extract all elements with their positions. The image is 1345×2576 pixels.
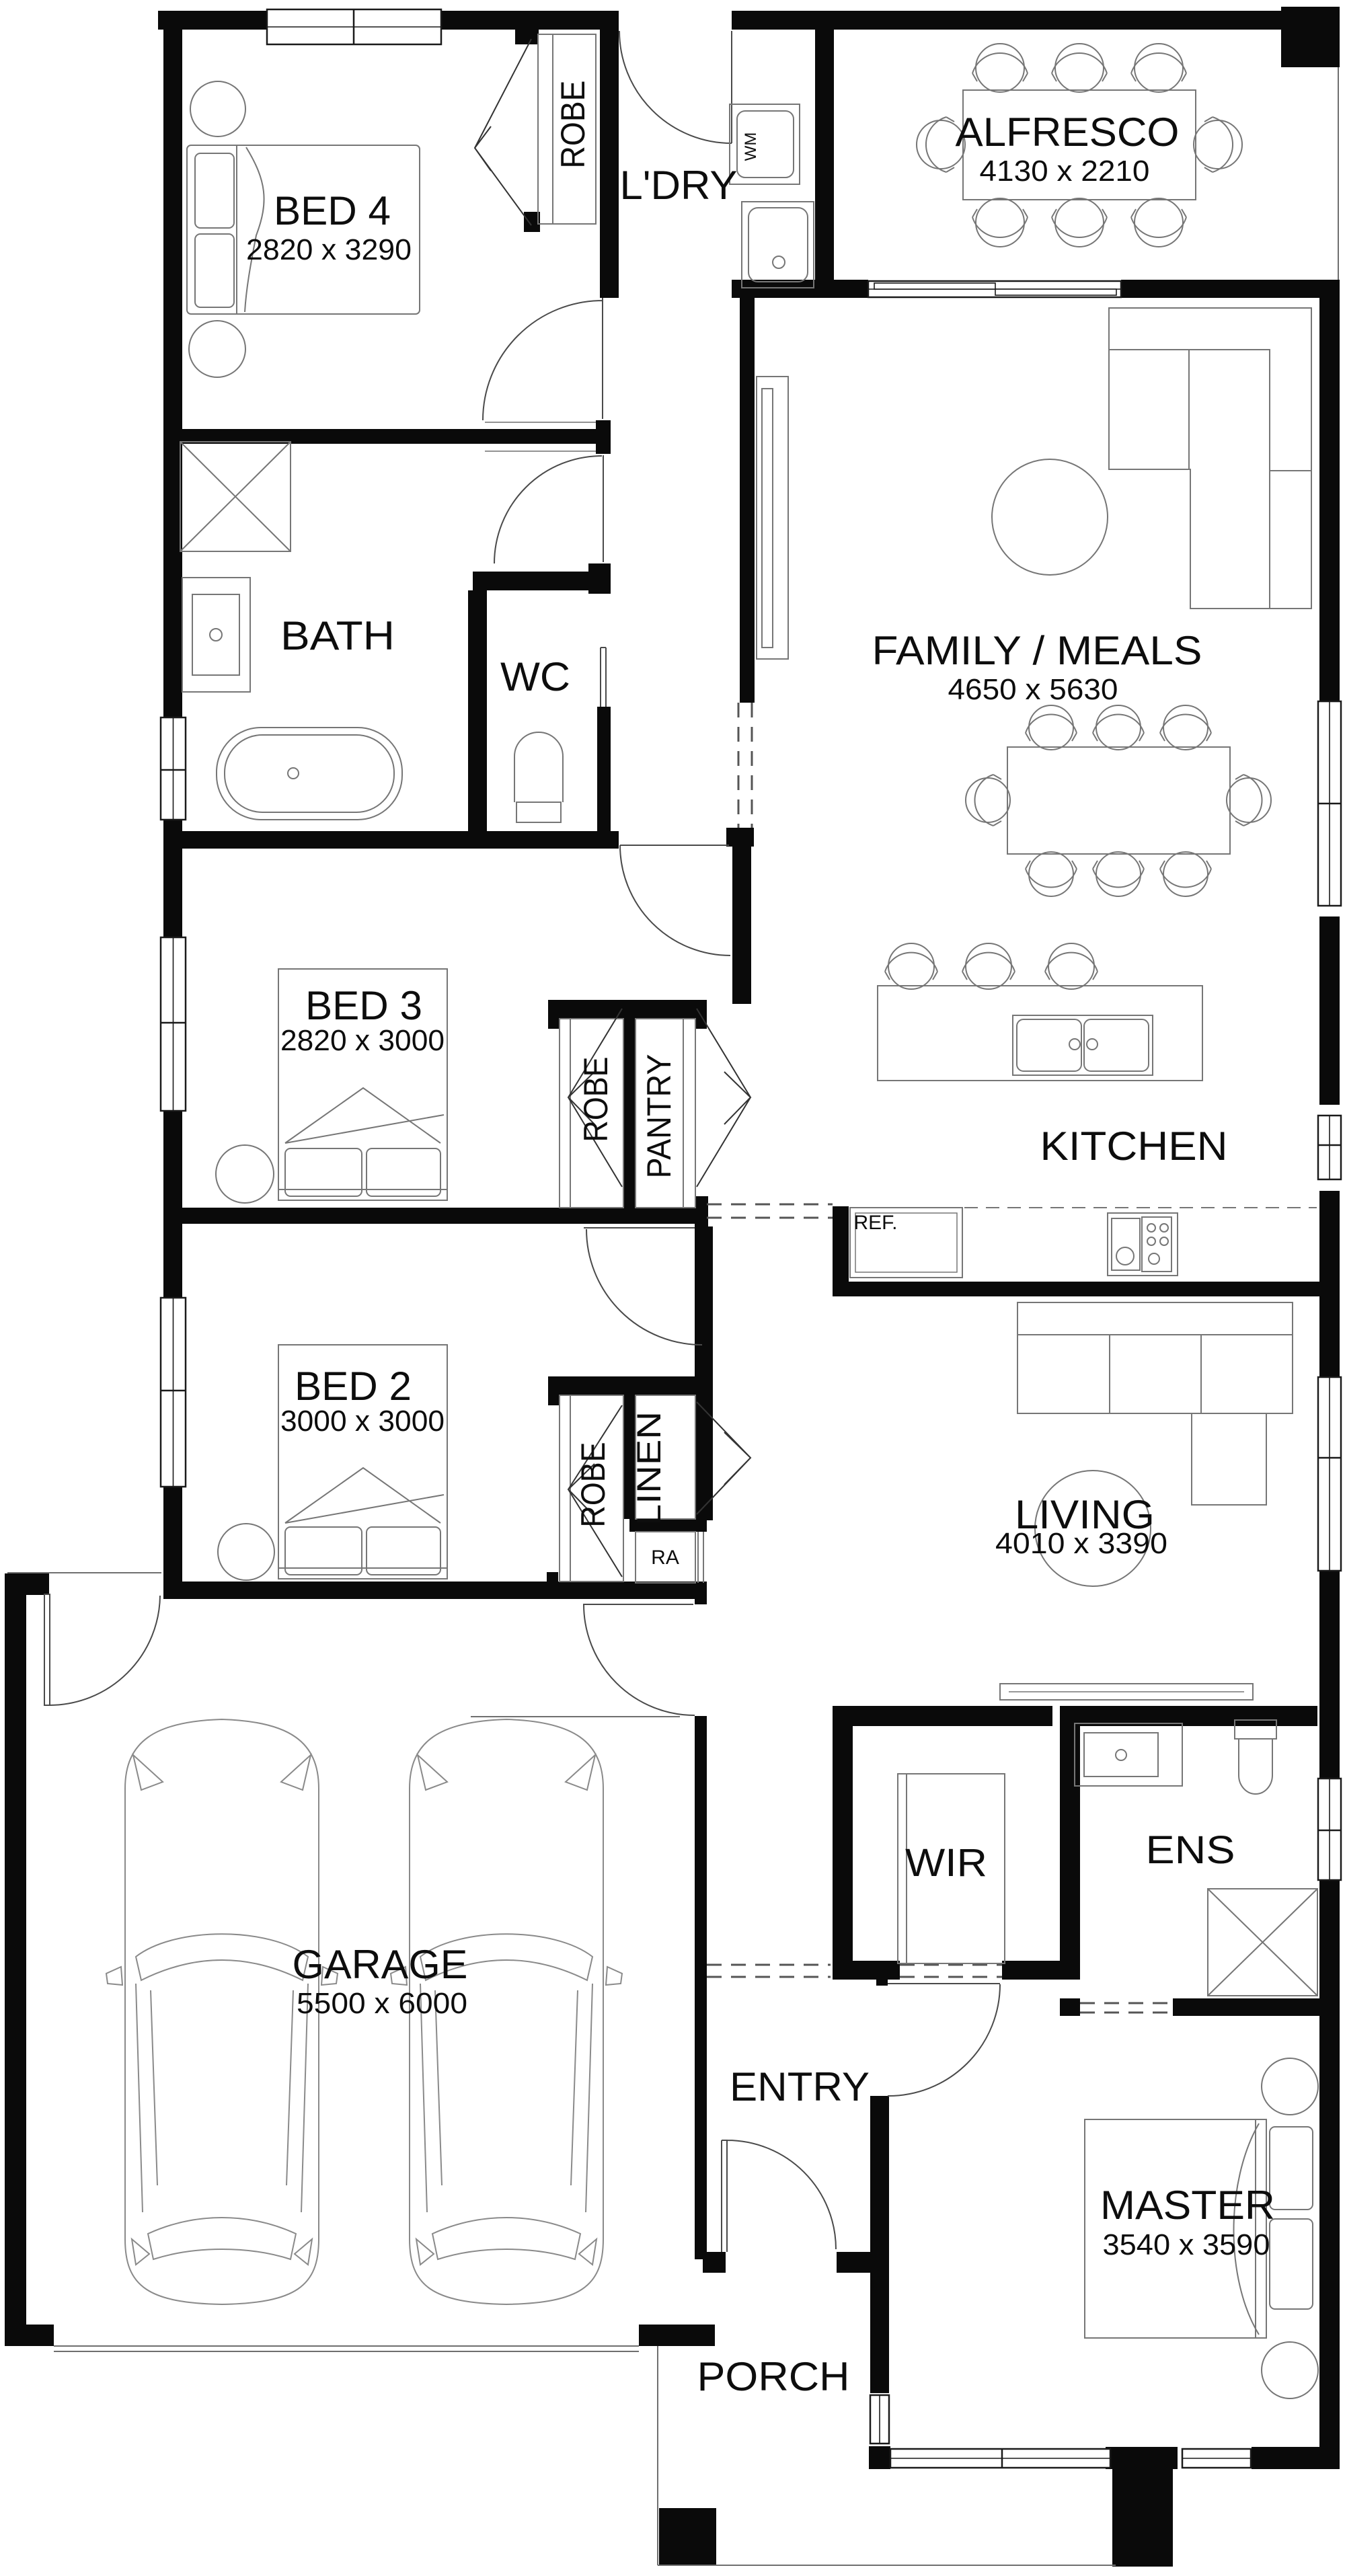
svg-text:4010 x 3390: 4010 x 3390: [995, 1527, 1167, 1560]
svg-text:GARAGE: GARAGE: [293, 1942, 468, 1987]
svg-text:BED 4: BED 4: [274, 188, 391, 233]
svg-text:FAMILY / MEALS: FAMILY / MEALS: [872, 628, 1202, 673]
svg-text:ROBE: ROBE: [577, 1057, 615, 1142]
svg-text:ENS: ENS: [1146, 1828, 1235, 1872]
svg-text:4130 x 2210: 4130 x 2210: [980, 155, 1150, 188]
svg-text:WC: WC: [500, 654, 570, 699]
svg-text:ALFRESCO: ALFRESCO: [956, 110, 1180, 155]
svg-text:WM: WM: [742, 132, 760, 161]
svg-text:BED 3: BED 3: [305, 983, 422, 1028]
svg-text:BED 2: BED 2: [295, 1364, 412, 1409]
svg-text:LINEN: LINEN: [630, 1411, 668, 1526]
svg-text:BATH: BATH: [280, 613, 395, 658]
svg-text:KITCHEN: KITCHEN: [1040, 1124, 1228, 1169]
svg-text:2820 x 3000: 2820 x 3000: [280, 1024, 445, 1057]
svg-text:4650 x 5630: 4650 x 5630: [948, 673, 1118, 706]
svg-text:ENTRY: ENTRY: [730, 2064, 870, 2109]
svg-text:5500 x 6000: 5500 x 6000: [297, 1987, 467, 2020]
svg-text:PANTRY: PANTRY: [640, 1054, 678, 1179]
svg-text:3000 x 3000: 3000 x 3000: [280, 1405, 445, 1438]
svg-text:WIR: WIR: [905, 1841, 987, 1885]
svg-text:PORCH: PORCH: [697, 2354, 850, 2399]
svg-text:ROBE: ROBE: [554, 81, 592, 169]
svg-text:L'DRY: L'DRY: [620, 163, 738, 208]
svg-text:ROBE: ROBE: [574, 1442, 612, 1528]
svg-text:RA: RA: [651, 1547, 679, 1569]
svg-text:3540 x 3590: 3540 x 3590: [1103, 2228, 1270, 2261]
svg-text:2820 x 3290: 2820 x 3290: [246, 233, 412, 266]
svg-text:MASTER: MASTER: [1100, 2183, 1275, 2228]
svg-text:REF.: REF.: [853, 1212, 897, 1234]
